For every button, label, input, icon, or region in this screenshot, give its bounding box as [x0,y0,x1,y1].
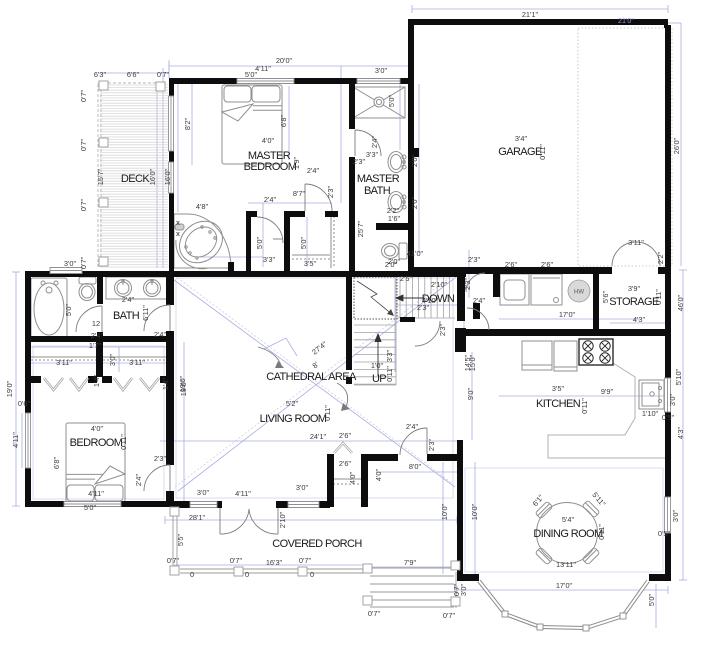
svg-text:2'4": 2'4" [473,296,486,305]
svg-text:0'5": 0'5" [658,529,671,538]
svg-text:17'0": 17'0" [556,581,573,590]
svg-text:4'3": 4'3" [633,315,646,324]
svg-text:6'11": 6'11" [141,305,150,321]
svg-text:2'3": 2'3" [438,324,447,337]
svg-text:5'0": 5'0" [255,237,264,250]
svg-text:15'0": 15'0" [468,354,477,371]
svg-text:0: 0 [310,570,314,579]
svg-text:0'6": 0'6" [18,399,31,408]
svg-text:3'0": 3'0" [64,259,77,268]
svg-text:9'9": 9'9" [601,387,614,396]
svg-text:2'3": 2'3" [427,439,436,452]
svg-text:0'7": 0'7" [299,556,312,565]
svg-text:2'0": 2'0" [410,155,419,168]
svg-text:2'4": 2'4" [307,166,320,175]
svg-text:0'11": 0'11" [385,366,394,382]
svg-text:3'3": 3'3" [385,350,394,363]
svg-text:0'7": 0'7" [79,139,88,152]
svg-text:1'0": 1'0" [371,361,384,370]
svg-text:DECK: DECK [121,173,150,185]
svg-text:3'11": 3'11" [129,358,145,367]
svg-text:25'7": 25'7" [356,220,365,237]
svg-text:0'7": 0'7" [79,257,88,270]
svg-text:46'0": 46'0" [676,294,685,311]
svg-text:4'3": 4'3" [676,427,685,440]
svg-text:0'11": 0'11" [597,524,606,540]
svg-text:COVERED PORCH: COVERED PORCH [272,538,362,550]
svg-text:x: x [176,220,180,227]
svg-text:x: x [176,231,180,238]
svg-text:GARAGE: GARAGE [498,146,542,158]
svg-text:5'0": 5'0" [387,95,396,108]
svg-text:6'8": 6'8" [52,457,61,470]
svg-text:0'11": 0'11" [119,434,128,450]
svg-text:10'0": 10'0" [470,503,479,520]
svg-text:5'4": 5'4" [562,515,575,524]
svg-text:0'11": 0'11" [323,405,332,421]
svg-text:2'4": 2'4" [122,295,135,304]
svg-text:0'11": 0'11" [580,398,589,414]
svg-text:13'11": 13'11" [556,560,576,569]
svg-text:CATHEDRAL AREA: CATHEDRAL AREA [266,371,357,383]
svg-text:LIVING ROOM: LIVING ROOM [260,413,327,425]
svg-text:2'3": 2'3" [353,157,366,166]
svg-text:3'5": 3'5" [552,384,565,393]
svg-text:0'7": 0'7" [79,199,88,212]
svg-text:0: 0 [245,570,249,579]
svg-text:2'3": 2'3" [463,278,472,291]
svg-text:BATH: BATH [113,310,140,322]
svg-text:2'2": 2'2" [656,252,665,265]
svg-text:3'0": 3'0" [197,488,210,497]
svg-text:3'11": 3'11" [628,238,644,247]
svg-text:2'3": 2'3" [468,255,481,264]
svg-text:4'11": 4'11" [11,432,20,448]
svg-text:15'7": 15'7" [96,168,105,185]
svg-text:5'2": 5'2" [286,399,299,408]
svg-text:6'8": 6'8" [279,115,288,128]
svg-text:16'0": 16'0" [163,168,172,185]
svg-text:HW: HW [574,290,584,296]
svg-text:9'0": 9'0" [466,388,475,401]
svg-text:3'0": 3'0" [296,483,309,492]
svg-text:26'0": 26'0" [672,137,681,154]
svg-text:3'0": 3'0" [375,66,388,75]
svg-text:7'9": 7'9" [404,558,417,567]
svg-text:4'0": 4'0" [262,136,275,145]
svg-text:5'0": 5'0" [245,70,258,79]
svg-text:0'11": 0'11" [538,144,547,160]
svg-text:4'11": 4'11" [88,489,104,498]
svg-text:0'7": 0'7" [230,556,243,565]
svg-text:4'8": 4'8" [196,202,209,211]
svg-text:4'0": 4'0" [348,472,357,485]
svg-text:3'5": 3'5" [304,259,317,268]
svg-text:16'3": 16'3" [266,558,283,567]
svg-text:1'9": 1'9" [292,157,301,170]
svg-text:12: 12 [92,319,100,328]
svg-text:5'0": 5'0" [84,503,97,512]
svg-text:0'5": 0'5" [662,413,675,422]
svg-text:8'0": 8'0" [409,462,422,471]
svg-text:BEDROOM: BEDROOM [244,161,297,173]
svg-text:1'7": 1'7" [89,341,102,350]
svg-text:2'4": 2'4" [370,136,379,149]
svg-text:21'1": 21'1" [522,10,539,19]
svg-text:0'7": 0'7" [79,90,88,103]
svg-text:1'4": 1'4" [161,378,170,391]
svg-text:28'1": 28'1" [189,513,206,522]
svg-text:2'4": 2'4" [154,330,167,339]
svg-text:5'0": 5'0" [299,237,308,250]
svg-text:3'3": 3'3" [263,255,276,264]
svg-text:16'0": 16'0" [148,168,157,185]
svg-text:MASTER: MASTER [357,173,400,185]
svg-text:3'0": 3'0" [459,584,468,597]
svg-text:BATH: BATH [364,185,391,197]
svg-text:21'0": 21'0" [618,16,634,25]
svg-text:2'6": 2'6" [505,260,518,269]
svg-text:0'7": 0'7" [368,609,381,618]
svg-text:5'0": 5'0" [64,304,73,317]
svg-text:STORAGE: STORAGE [609,296,659,308]
svg-text:2'3": 2'3" [154,454,167,463]
svg-text:2'3": 2'3" [326,186,335,199]
svg-text:19'0": 19'0" [5,380,14,397]
svg-text:5'5": 5'5" [176,534,185,547]
svg-text:5'10": 5'10" [674,368,683,385]
svg-text:1'6": 1'6" [388,214,401,223]
svg-text:2'4": 2'4" [91,331,104,340]
svg-text:6'3": 6'3" [94,70,107,79]
svg-text:2'0": 2'0" [385,260,398,269]
svg-text:0'7": 0'7" [443,611,456,620]
svg-text:6'6": 6'6" [127,70,140,79]
svg-text:4'0": 4'0" [91,424,104,433]
svg-text:10'0": 10'0" [440,503,449,520]
svg-text:8'2": 8'2" [183,118,192,131]
svg-text:41'0": 41'0" [407,249,424,258]
svg-text:3'3": 3'3" [366,150,379,159]
svg-text:BEDROOM: BEDROOM [70,437,123,449]
svg-text:2'10": 2'10" [431,280,448,289]
svg-text:20'0": 20'0" [276,56,293,65]
svg-text:0'11": 0'11" [654,289,663,305]
svg-text:3'11": 3'11" [56,358,72,367]
svg-text:2'6": 2'6" [339,459,352,468]
svg-text:19'0": 19'0" [178,375,187,392]
svg-text:3'0": 3'0" [671,510,680,523]
svg-text:2'5": 2'5" [400,274,413,283]
svg-text:2'3": 2'3" [417,303,430,312]
svg-text:8'7": 8'7" [293,189,306,198]
svg-text:0'7": 0'7" [157,70,170,79]
svg-text:5'0": 5'0" [647,594,656,607]
svg-text:2'0": 2'0" [410,197,419,210]
svg-text:KITCHEN: KITCHEN [536,398,581,410]
svg-text:2'4": 2'4" [406,422,419,431]
svg-text:1'10": 1'10" [642,409,659,418]
svg-text:5'6": 5'6" [601,291,610,304]
svg-text:4'11": 4'11" [255,64,271,73]
svg-text:1'4": 1'4" [92,375,101,388]
svg-text:0'7": 0'7" [167,556,180,565]
svg-text:0: 0 [190,570,194,579]
svg-text:2'4": 2'4" [264,195,277,204]
svg-text:24'1": 24'1" [310,432,327,441]
svg-text:2'6": 2'6" [541,260,554,269]
svg-text:DINING ROOM: DINING ROOM [533,528,603,540]
svg-text:17'0": 17'0" [559,310,576,319]
svg-text:3'0": 3'0" [108,354,117,367]
svg-text:4'0": 4'0" [374,469,383,482]
svg-text:4'11": 4'11" [235,489,251,498]
svg-text:3'4": 3'4" [515,134,528,143]
svg-text:3'0": 3'0" [668,394,677,407]
svg-text:3'9": 3'9" [628,284,641,293]
svg-text:2'10": 2'10" [278,511,287,528]
svg-text:2'6": 2'6" [339,431,352,440]
svg-text:2'4": 2'4" [134,474,143,487]
